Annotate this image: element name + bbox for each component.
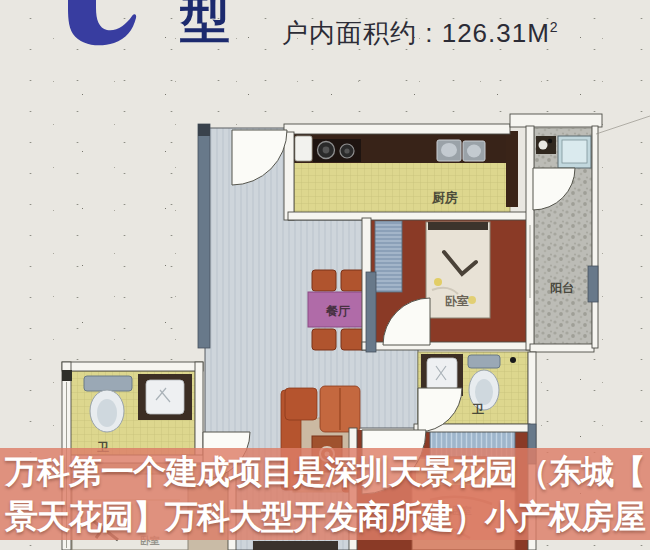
caption-line-2: 景天花园】万科大型开发商所建）小产权房屋 xyxy=(5,494,645,539)
label-kitchen: 厨房 xyxy=(431,190,458,205)
bathroom-left-area xyxy=(64,371,196,456)
label-dining: 餐厅 xyxy=(325,304,350,318)
label-balcony: 阳台 xyxy=(550,281,574,295)
tv-cabinet xyxy=(253,541,338,550)
caption-line-1: 万科第一个建成项目是深圳天景花园（东城【 xyxy=(5,449,645,494)
label-bedroom-main: 卧室 xyxy=(445,294,469,308)
floorplan-photo: 型 户内面积约 : 126.31M2 xyxy=(0,0,650,550)
caption-overlay: 万科第一个建成项目是深圳天景花园（东城【 景天花园】万科大型开发商所建）小产权房… xyxy=(0,448,650,540)
shower-left xyxy=(138,374,192,420)
balcony-area xyxy=(534,128,592,348)
kitchen-area xyxy=(292,131,518,216)
kitchen-sink xyxy=(437,140,485,161)
wardrobe xyxy=(375,221,402,292)
label-bath-right: 卫 xyxy=(472,402,484,416)
paper-crease-line xyxy=(596,116,650,134)
fridge xyxy=(295,136,312,161)
